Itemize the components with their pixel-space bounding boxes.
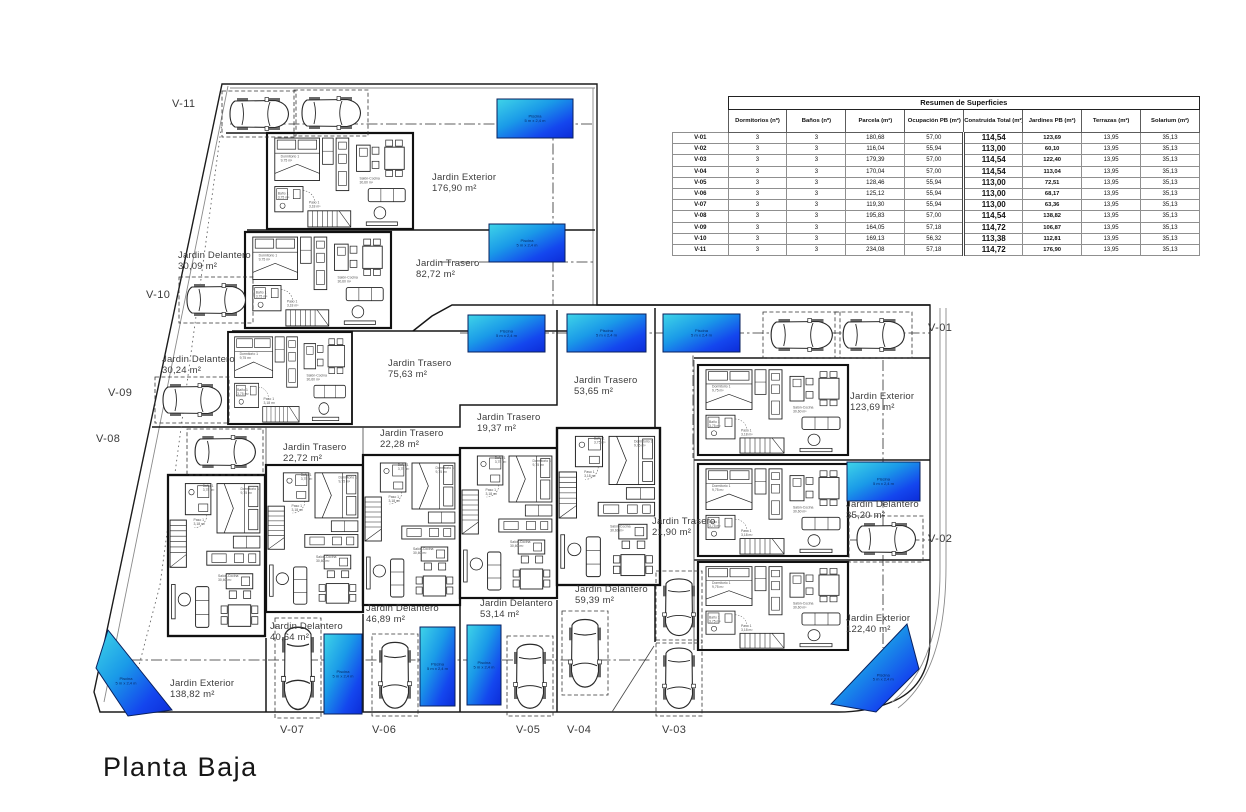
table-cell: 35,13 (1141, 222, 1200, 233)
table-cell: 114,54 (964, 155, 1023, 166)
entrance-gate-swing (612, 646, 654, 712)
room-label: Baño 13,75 m² (203, 484, 215, 492)
table-cell: 35,13 (1141, 155, 1200, 166)
room-label: Baño 13,75 m² (709, 420, 721, 428)
parked-car (771, 319, 832, 352)
garden-label: Jardin Delantero59,39 m² (575, 584, 648, 606)
table-row: V-0933164,0557,18114,72106,8713,9535,13 (673, 222, 1200, 233)
table-cell: 13,95 (1082, 166, 1141, 177)
table-cell: 13,95 (1082, 133, 1141, 144)
table-cell: 195,83 (846, 211, 905, 222)
unit-v08 (168, 475, 265, 636)
room-label: Paso 13,18 m² (292, 504, 304, 512)
table-cell: 113,00 (964, 200, 1023, 211)
row-header: V-09 (673, 222, 729, 233)
table-cell: 13,95 (1082, 144, 1141, 155)
table-cell: 113,00 (964, 189, 1023, 200)
table-cell: 3 (728, 222, 787, 233)
table-cell: 113,38 (964, 233, 1023, 244)
unit-id-marker: V-04 (567, 724, 591, 736)
table-row: V-0333179,3957,00114,54122,4013,9535,13 (673, 155, 1200, 166)
parked-car (230, 98, 289, 131)
garden-label: Jardin Trasero82,72 m² (416, 258, 480, 280)
room-label: Baño 13,75 m² (237, 388, 249, 396)
parked-car (187, 284, 246, 317)
table-cell: 119,30 (846, 200, 905, 211)
room-label: Paso 13,18 m² (287, 300, 299, 308)
table-cell: 13,95 (1082, 155, 1141, 166)
corner-cell (673, 110, 729, 133)
room-label: Baño 13,75 m² (398, 463, 410, 471)
table-row: V-1033169,1356,32113,38112,8113,9535,13 (673, 233, 1200, 244)
parked-car (163, 384, 222, 417)
table-cell: 179,39 (846, 155, 905, 166)
table-row: V-0633125,1255,94113,0068,1713,9535,13 (673, 189, 1200, 200)
table-cell: 170,04 (846, 166, 905, 177)
table-cell: 13,95 (1082, 200, 1141, 211)
table-cell: 55,94 (905, 189, 964, 200)
table-row: V-0133180,6857,00114,54123,6913,9535,13 (673, 133, 1200, 144)
column-header: Baños (nº) (787, 110, 846, 133)
room-label: Baño 13,75 m² (495, 456, 507, 464)
row-header: V-01 (673, 133, 729, 144)
table-cell: 112,81 (1023, 233, 1082, 244)
room-label: Paso 13,18 m² (389, 495, 401, 503)
parked-car (857, 523, 916, 556)
table-cell: 35,13 (1141, 144, 1200, 155)
table-cell: 125,12 (846, 189, 905, 200)
table-cell: 3 (787, 222, 846, 233)
row-header: V-11 (673, 245, 729, 256)
parked-car (379, 642, 412, 708)
parked-car (302, 97, 361, 130)
table-cell: 13,95 (1082, 233, 1141, 244)
garden-label: Jardin Trasero22,28 m² (380, 428, 444, 450)
table-cell: 3 (728, 155, 787, 166)
table-cell: 106,87 (1023, 222, 1082, 233)
table-cell: 3 (728, 177, 787, 188)
table-row: V-0833195,8357,00114,54138,8213,9535,13 (673, 211, 1200, 222)
table-cell: 56,32 (905, 233, 964, 244)
table-cell: 3 (728, 245, 787, 256)
table-cell: 57,00 (905, 211, 964, 222)
table-cell: 35,13 (1141, 177, 1200, 188)
garden-label: Jardin Trasero22,72 m² (283, 442, 347, 464)
table-cell: 3 (787, 166, 846, 177)
table-cell: 3 (728, 211, 787, 222)
parked-car (663, 648, 696, 708)
garden-label: Jardin Exterior123,69 m² (850, 391, 914, 413)
room-label: Baño 13,75 m² (278, 192, 290, 200)
column-header: Dormitorios (nº) (728, 110, 787, 133)
garden-label: Jardin Exterior138,82 m² (170, 678, 234, 700)
table-cell: 13,95 (1082, 211, 1141, 222)
table-cell: 114,54 (964, 133, 1023, 144)
parked-car (569, 619, 602, 687)
unit-v05 (460, 448, 557, 598)
table-cell: 13,95 (1082, 189, 1141, 200)
table-cell: 13,95 (1082, 245, 1141, 256)
unit-id-marker: V-05 (516, 724, 540, 736)
column-header: Parcela (m²) (846, 110, 905, 133)
table-cell: 57,18 (905, 222, 964, 233)
column-header: Construida Total (m²) (964, 110, 1023, 133)
table-cell: 114,54 (964, 211, 1023, 222)
table-cell: 57,18 (905, 245, 964, 256)
table-cell: 60,10 (1023, 144, 1082, 155)
garden-label: Jardin Delantero53,14 m² (480, 598, 553, 620)
unit-id-marker: V-06 (372, 724, 396, 736)
room-label: Paso 13,18 m² (194, 518, 206, 526)
table-cell: 35,13 (1141, 200, 1200, 211)
column-header: Solarium (m²) (1141, 110, 1200, 133)
unit-id-marker: V-08 (96, 433, 120, 445)
unit-v07 (266, 465, 363, 612)
table-cell: 3 (787, 177, 846, 188)
garden-label: Jardin Exterior176,90 m² (432, 172, 496, 194)
room-label: Baño 13,75 m² (301, 473, 313, 481)
table-row: V-1133234,0857,18114,72176,9013,9535,13 (673, 245, 1200, 256)
room-label: Baño 13,75 m² (256, 291, 268, 299)
table-cell: 55,94 (905, 200, 964, 211)
row-header: V-07 (673, 200, 729, 211)
table-cell: 3 (728, 200, 787, 211)
unit-id-marker: V-02 (928, 533, 952, 545)
table-cell: 122,40 (1023, 155, 1082, 166)
unit-v02 (698, 464, 848, 556)
table-cell: 113,04 (1023, 166, 1082, 177)
table-cell: 176,90 (1023, 245, 1082, 256)
table-cell: 114,72 (964, 245, 1023, 256)
table-cell: 3 (728, 189, 787, 200)
unit-v01 (698, 365, 848, 455)
table-cell: 35,13 (1141, 189, 1200, 200)
table-cell: 113,00 (964, 177, 1023, 188)
table-cell: 169,13 (846, 233, 905, 244)
table-cell: 72,51 (1023, 177, 1082, 188)
table-cell: 114,72 (964, 222, 1023, 233)
row-header: V-04 (673, 166, 729, 177)
column-header: Ocupación PB (m²) (905, 110, 964, 133)
row-header: V-02 (673, 144, 729, 155)
swimming-pool (96, 630, 172, 716)
table-row: V-0733119,3055,94113,0063,3613,9535,13 (673, 200, 1200, 211)
garden-label: Jardin Delantero30,24 m² (162, 354, 235, 376)
room-label: Paso 13,18 m² (309, 201, 321, 209)
table-cell: 3 (728, 133, 787, 144)
table-cell: 57,00 (905, 155, 964, 166)
table-cell: 35,13 (1141, 166, 1200, 177)
row-header: V-10 (673, 233, 729, 244)
column-header: Jardines PB (m²) (1023, 110, 1082, 133)
table-cell: 3 (728, 233, 787, 244)
parked-car (843, 319, 904, 352)
room-label: Paso 13,18 m² (584, 470, 596, 478)
garden-label: Jardin Trasero75,63 m² (388, 358, 452, 380)
table-cell: 3 (787, 133, 846, 144)
garden-label: Jardin Trasero19,37 m² (477, 412, 541, 434)
parked-car (195, 436, 255, 469)
table-cell: 234,08 (846, 245, 905, 256)
row-header: V-08 (673, 211, 729, 222)
row-header: V-05 (673, 177, 729, 188)
row-header: V-03 (673, 155, 729, 166)
unit-v04 (557, 428, 660, 585)
room-label: Paso 13,18 m² (264, 397, 276, 405)
table-cell: 3 (787, 155, 846, 166)
unit-id-marker: V-01 (928, 322, 952, 334)
table-cell: 63,36 (1023, 200, 1082, 211)
drawing-title: Planta Baja (103, 752, 258, 783)
table-cell: 3 (787, 233, 846, 244)
table-cell: 13,95 (1082, 222, 1141, 233)
table-cell: 57,00 (905, 133, 964, 144)
table-cell: 55,94 (905, 144, 964, 155)
unit-v06 (363, 455, 460, 605)
room-label: Paso 13,18 m² (486, 488, 498, 496)
table-cell: 35,13 (1141, 211, 1200, 222)
table-cell: 116,04 (846, 144, 905, 155)
architectural-drawing-page: Dormitorio 19,75 m²Baño 13,75 m²Paso 13,… (0, 0, 1246, 812)
table-cell: 3 (787, 211, 846, 222)
table-row: V-0233116,0455,94113,0060,1013,9535,13 (673, 144, 1200, 155)
table-cell: 3 (787, 200, 846, 211)
row-header: V-06 (673, 189, 729, 200)
column-header: Terrazas (m²) (1082, 110, 1141, 133)
table-cell: 138,82 (1023, 211, 1082, 222)
table-cell: 3 (787, 189, 846, 200)
table-cell: 3 (787, 144, 846, 155)
table-cell: 180,68 (846, 133, 905, 144)
unit-id-marker: V-10 (146, 289, 170, 301)
unit-id-marker: V-03 (662, 724, 686, 736)
table-cell: 35,13 (1141, 133, 1200, 144)
table-cell: 113,00 (964, 144, 1023, 155)
unit-v09 (228, 332, 352, 424)
room-label: Baño 13,75 m² (709, 616, 721, 624)
unit-id-marker: V-07 (280, 724, 304, 736)
table-row: V-0433170,0457,00114,54113,0413,9535,13 (673, 166, 1200, 177)
garden-label: Jardin Delantero35,20 m² (846, 499, 919, 521)
garden-label: Jardin Delantero46,89 m² (366, 603, 439, 625)
parked-car (663, 579, 696, 636)
table-cell: 3 (787, 245, 846, 256)
table-cell: 128,46 (846, 177, 905, 188)
table-title: Resumen de Superficies (728, 97, 1200, 110)
table-cell: 35,13 (1141, 245, 1200, 256)
table-cell: 68,17 (1023, 189, 1082, 200)
garden-label: Jardin Trasero53,65 m² (574, 375, 638, 397)
surface-summary-table: Resumen de SuperficiesDormitorios (nº)Ba… (672, 96, 1200, 256)
table-row: V-0533128,4655,94113,0072,5113,9535,13 (673, 177, 1200, 188)
table-cell: 3 (728, 166, 787, 177)
unit-v10 (245, 232, 391, 328)
table-cell: 57,00 (905, 166, 964, 177)
room-label: Paso 13,18 m² (741, 624, 753, 632)
parked-car (514, 644, 547, 708)
table-cell: 3 (728, 144, 787, 155)
table-cell: 13,95 (1082, 177, 1141, 188)
unit-v03 (698, 562, 848, 650)
table-cell: 114,54 (964, 166, 1023, 177)
room-label: Paso 13,18 m² (741, 428, 753, 436)
table-cell: 123,69 (1023, 133, 1082, 144)
unit-id-marker: V-09 (108, 387, 132, 399)
garden-label: Jardin Delantero30,09 m² (178, 250, 251, 272)
room-label: Baño 13,75 m² (594, 437, 606, 445)
unit-v11 (267, 133, 413, 229)
table-cell: 55,94 (905, 177, 964, 188)
table-cell: 35,13 (1141, 233, 1200, 244)
unit-id-marker: V-11 (172, 98, 195, 110)
table-cell: 164,05 (846, 222, 905, 233)
room-label: Paso 13,18 m² (741, 529, 753, 537)
